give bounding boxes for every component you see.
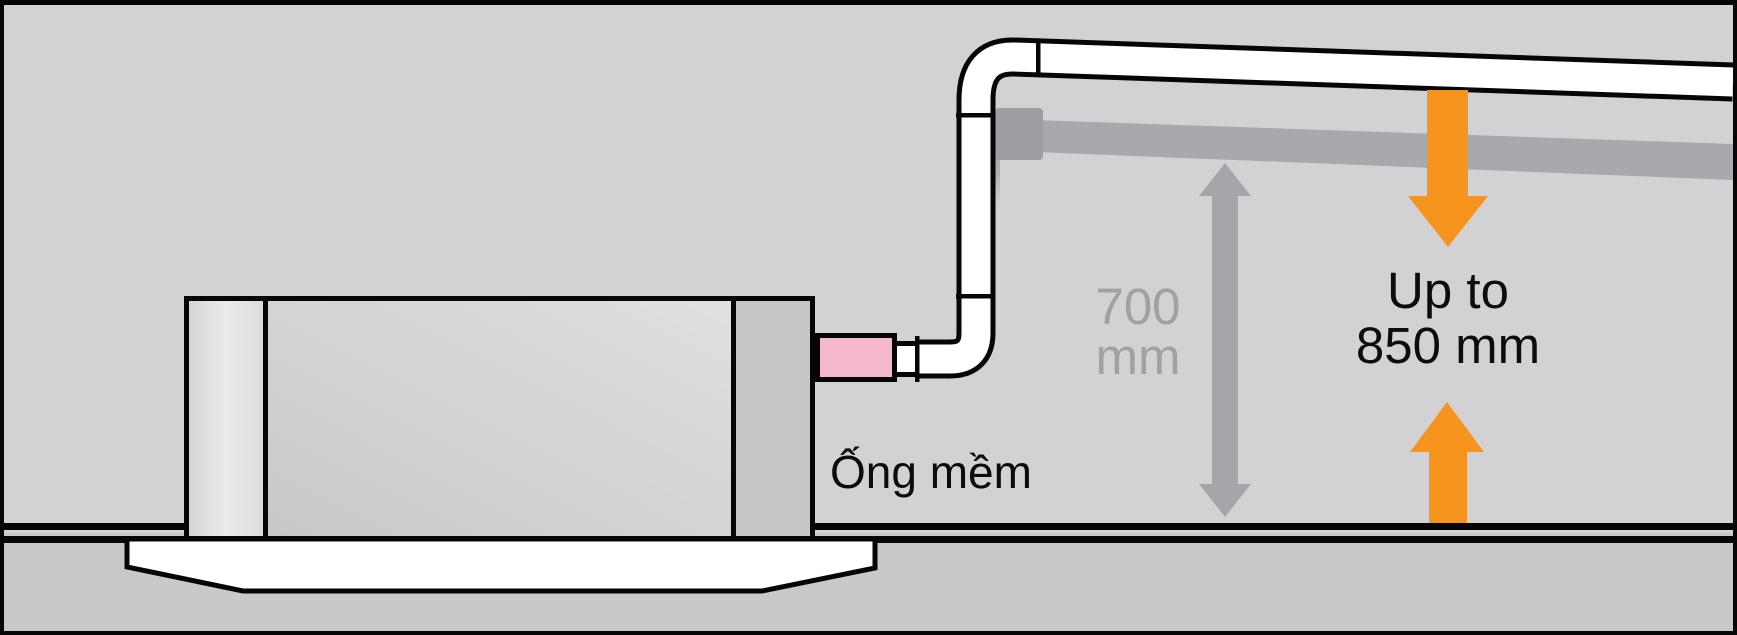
frame-bottom [0,631,1737,635]
unit-body [268,301,731,536]
drain-lift-850-label: Up to 850 mm [1327,263,1569,373]
drain-lift-850-line1: Up to [1327,263,1569,318]
frame-left [0,0,4,635]
up-arrow-shaft [1429,452,1467,523]
joint-elbow-socket-face [915,336,920,382]
clearance-700-value: 700 [1058,282,1218,332]
down-arrow-shaft [1427,90,1468,196]
drain-lift-850-line2: 850 mm [1327,318,1569,373]
unit-divider-left [263,301,268,536]
unit-right-panel [736,301,810,536]
indoor-unit [184,296,815,541]
unit-left-panel [189,301,263,536]
frame-top [0,0,1737,5]
joint-top-run [1036,40,1041,77]
unit-divider-right [731,301,736,536]
joint-lower [956,294,995,299]
gray-pipe-coupling [995,108,1043,160]
joint-upper [956,113,995,118]
clearance-700-label: 700 mm [1058,282,1218,382]
ceiling-panel [127,539,875,591]
installation-diagram: Ống mềm 700 mm Up to 850 mm [0,0,1737,635]
flexible-hose-label: Ống mềm [830,445,1032,499]
frame-right [1733,0,1737,635]
hose-body [820,338,892,377]
clearance-700-unit: mm [1058,332,1218,382]
